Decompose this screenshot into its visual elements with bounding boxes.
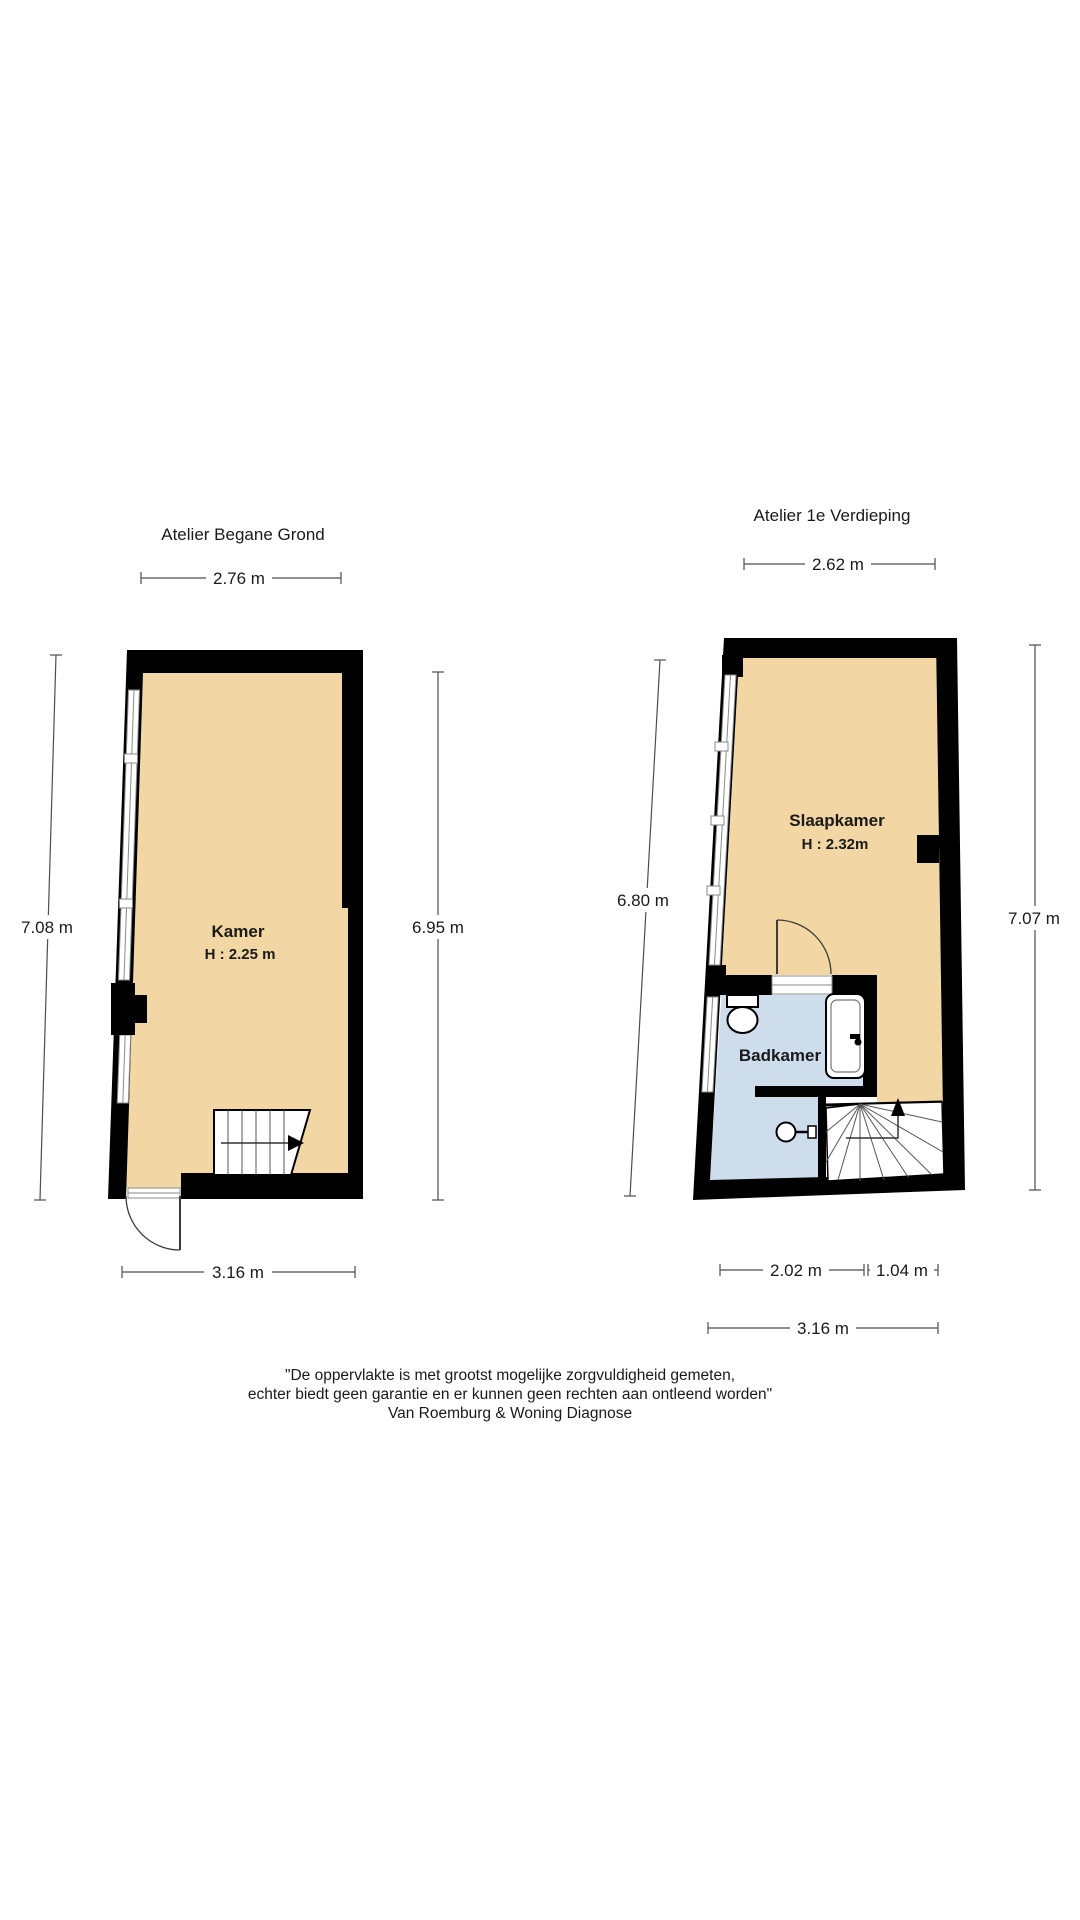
dim-bottom-left-label: 2.02 m — [770, 1261, 822, 1280]
ground-floor-plan: Atelier Begane Grond — [15, 525, 471, 1282]
dimension-bottom-total: 3.16 m — [708, 1316, 938, 1338]
room-label-badkamer: Badkamer — [739, 1046, 822, 1065]
dim-right-label: 7.07 m — [1008, 909, 1060, 928]
room-height-kamer: H : 2.25 m — [205, 946, 276, 963]
door-icon — [126, 1188, 180, 1250]
dim-right-label: 6.95 m — [412, 918, 464, 937]
dim-bottom-label: 3.16 m — [212, 1263, 264, 1282]
first-floor-plan: Atelier 1e Verdieping — [611, 506, 1067, 1338]
stairs-icon — [826, 1098, 944, 1181]
disclaimer: "De oppervlakte is met grootst mogelijke… — [248, 1367, 772, 1422]
dimension-right: 7.07 m — [1001, 645, 1067, 1190]
floorplan-page: Atelier Begane Grond — [0, 0, 1080, 1920]
dim-top-label: 2.62 m — [812, 555, 864, 574]
dimension-top: 2.76 m — [141, 566, 341, 588]
dimension-right: 6.95 m — [405, 672, 471, 1200]
dimension-left: 7.08 m — [15, 655, 79, 1200]
ground-floor-title: Atelier Begane Grond — [161, 525, 325, 544]
disclaimer-line-1: "De oppervlakte is met grootst mogelijke… — [285, 1367, 735, 1384]
disclaimer-line-2: echter biedt geen garantie en er kunnen … — [248, 1386, 772, 1403]
dimension-bottom-right: 1.04 m — [868, 1258, 938, 1280]
dimension-left: 6.80 m — [611, 660, 675, 1196]
first-floor-title: Atelier 1e Verdieping — [754, 506, 911, 525]
dimension-bottom: 3.16 m — [122, 1260, 355, 1282]
dimension-bottom-left: 2.02 m — [720, 1258, 864, 1280]
window-icon — [117, 1035, 130, 1103]
bathtub-icon — [826, 994, 865, 1078]
dim-bottom-right-label: 1.04 m — [876, 1261, 928, 1280]
room-label-kamer: Kamer — [212, 922, 265, 941]
dimension-top: 2.62 m — [744, 552, 935, 574]
toilet-icon — [727, 995, 758, 1033]
dim-left-label: 7.08 m — [21, 918, 73, 937]
disclaimer-line-3: Van Roemburg & Woning Diagnose — [388, 1405, 632, 1422]
dim-top-label: 2.76 m — [213, 569, 265, 588]
dim-bottom-total-label: 3.16 m — [797, 1319, 849, 1338]
dim-left-label: 6.80 m — [617, 891, 669, 910]
room-height-slaapkamer: H : 2.32m — [802, 836, 869, 853]
room-label-slaapkamer: Slaapkamer — [789, 811, 885, 830]
